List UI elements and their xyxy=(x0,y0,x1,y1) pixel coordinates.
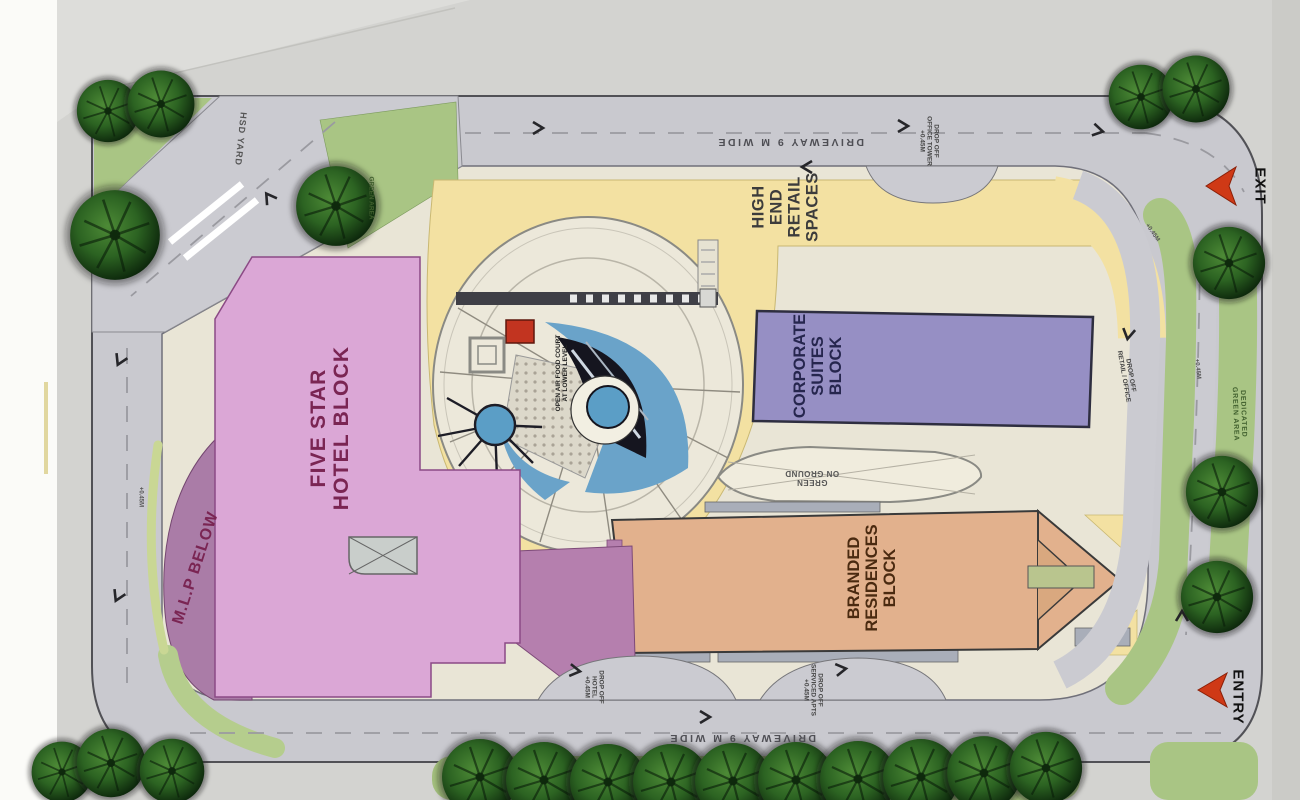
square-pavilion xyxy=(470,338,504,372)
corporate-suites-block-shape xyxy=(753,311,1093,427)
watermark-text xyxy=(44,382,48,474)
site-plan-drawing xyxy=(0,0,1300,800)
site-plan-canvas: FIVE STAR HOTEL BLOCK M.L.P BELOW HIGH E… xyxy=(0,0,1300,800)
hotel-court-hatch xyxy=(349,537,417,574)
green-on-ground-shape xyxy=(718,447,981,502)
red-kiosk xyxy=(506,320,534,343)
branded-residences-block-shape xyxy=(565,502,1130,662)
